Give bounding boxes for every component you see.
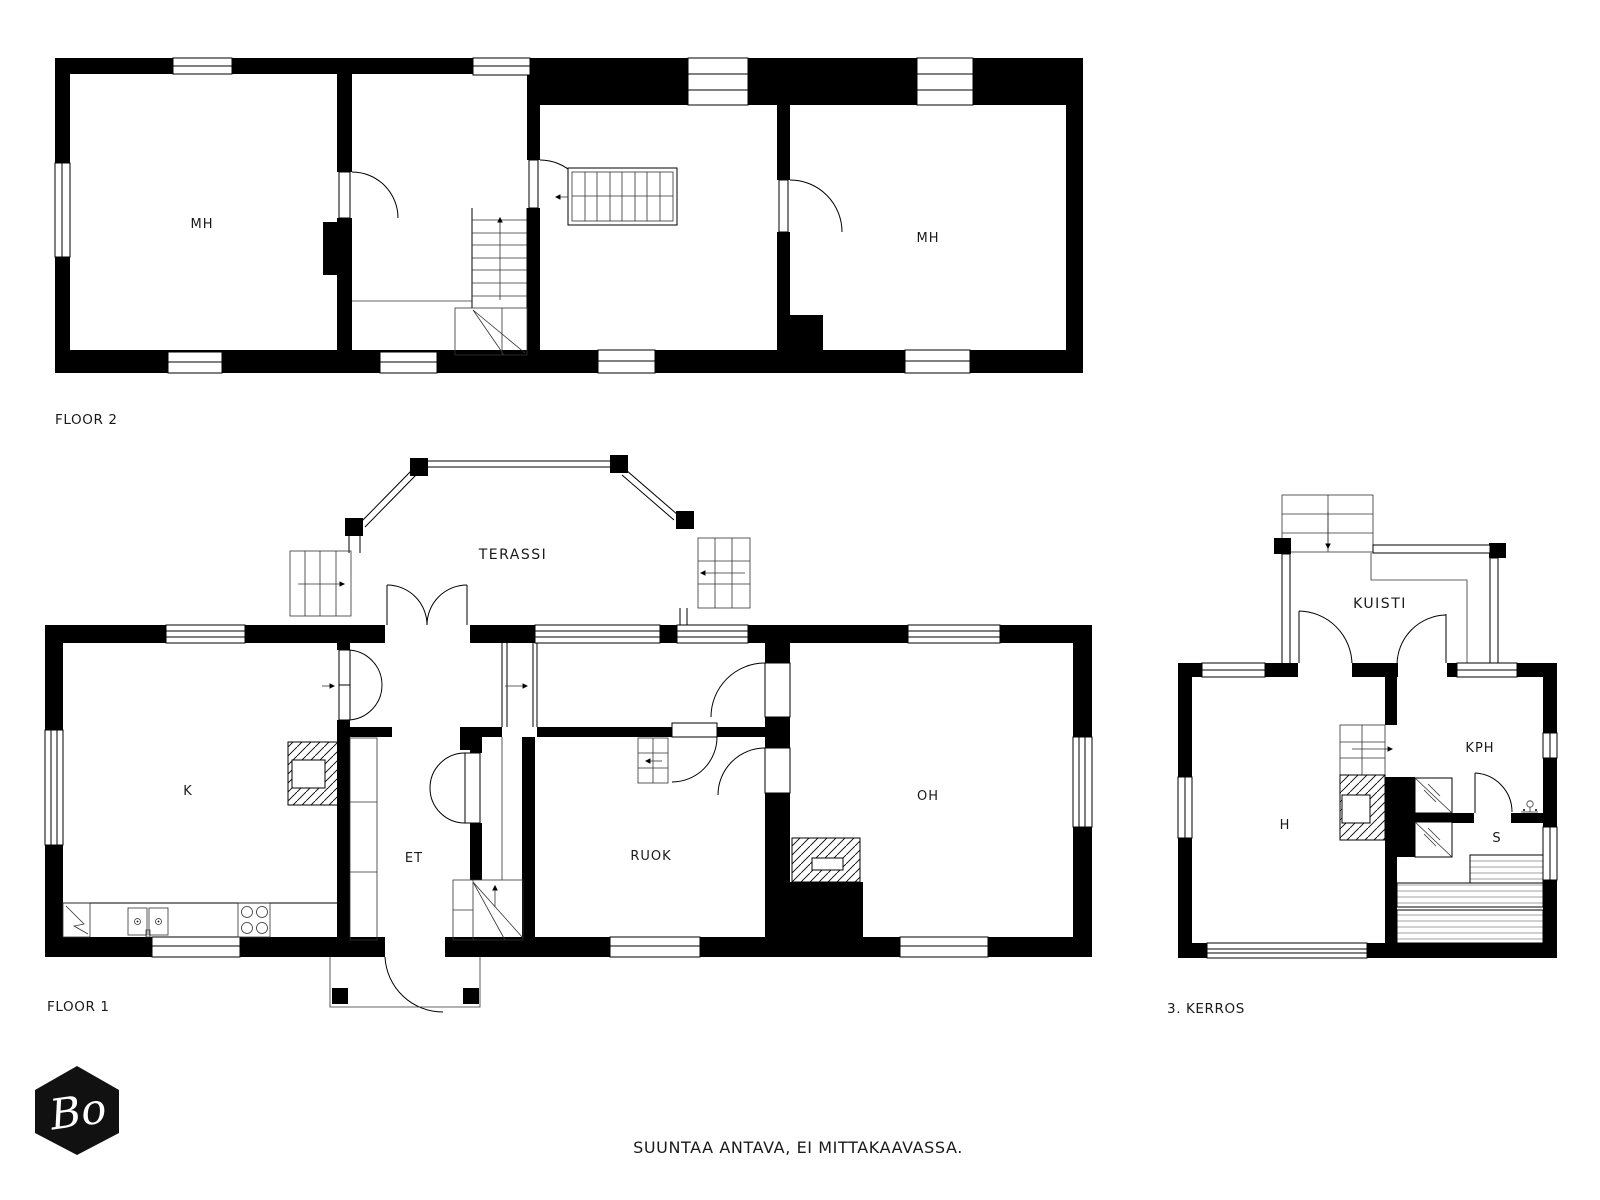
room-label-mh-right: MH [917, 231, 940, 246]
kitchen-hall-double-door [322, 650, 382, 720]
hall-ruok-door [672, 737, 717, 782]
shower-s [1415, 822, 1452, 857]
window [1178, 777, 1192, 838]
sink [128, 908, 168, 937]
terrace-french-doors [387, 585, 467, 625]
window [166, 625, 245, 643]
terrace-steps-left [290, 551, 351, 616]
room-label-s: S [1492, 831, 1501, 846]
window [535, 625, 660, 643]
hall-stairs [1340, 725, 1392, 775]
floor1-openings [337, 625, 790, 957]
entrance-door [330, 957, 480, 1012]
kph-door [1475, 773, 1512, 813]
window [688, 58, 748, 105]
room-label-h: H [1280, 818, 1291, 833]
floor-plan-page: MH MH FLOOR 2 TERASSI [0, 0, 1600, 1200]
window [905, 350, 970, 373]
window [1543, 827, 1557, 880]
window [173, 58, 232, 74]
floor1-plan: TERASSI [45, 455, 1092, 1012]
floor3-plan: KUISTI [1178, 495, 1557, 958]
room-label-kuisti: KUISTI [1353, 596, 1407, 612]
floor2-plan: MH MH [55, 58, 1083, 373]
shower-kph [1415, 778, 1452, 813]
ruok-steps [638, 738, 668, 783]
floor1-caption: FLOOR 1 [47, 999, 110, 1015]
porch: KUISTI [1274, 495, 1506, 665]
ruok-oh-door [718, 748, 765, 795]
toilet-icon [1521, 801, 1538, 812]
window [1207, 943, 1367, 958]
floor-plan-drawing: MH MH FLOOR 2 TERASSI [0, 0, 1600, 1200]
window [152, 937, 240, 957]
door [339, 172, 398, 218]
terrace: TERASSI [290, 455, 750, 625]
porch-double-door [1299, 611, 1446, 665]
window [168, 352, 222, 373]
winder-stairs [453, 880, 523, 940]
room-label-terassi: TERASSI [478, 547, 548, 563]
window [900, 937, 988, 957]
kitchen-counter [63, 903, 337, 937]
et-ruok-double-door [430, 753, 480, 823]
oh-fireplace [792, 838, 860, 882]
terrace-steps-right [698, 538, 750, 608]
window [1457, 663, 1517, 677]
hall-chimney [1340, 775, 1385, 840]
window [45, 730, 63, 845]
kitchen-chimney [288, 742, 340, 805]
floor3-caption: 3. KERROS [1167, 1001, 1245, 1017]
room-label-ruok: RUOK [630, 849, 671, 864]
room-label-et: ET [405, 851, 423, 866]
window [610, 937, 700, 957]
stove [238, 903, 270, 937]
floor2-caption: FLOOR 2 [55, 412, 118, 428]
window [598, 350, 655, 373]
window [473, 58, 530, 75]
room-label-mh-left: MH [191, 217, 214, 232]
disclaimer-text: SUUNTAA ANTAVA, EI MITTAKAAVASSA. [633, 1138, 963, 1157]
door [779, 180, 842, 232]
window [55, 163, 70, 257]
room-label-k: K [183, 784, 193, 799]
room-label-oh: OH [917, 789, 939, 804]
hall-oh-door [711, 663, 765, 717]
floor2-windows [55, 58, 973, 373]
window [1073, 737, 1092, 827]
window [1202, 663, 1265, 677]
floor2-stairwell-opening [556, 168, 677, 225]
window [917, 58, 973, 105]
corner-cabinet [63, 903, 90, 937]
window [380, 352, 437, 373]
et-wardrobe [350, 738, 377, 940]
window [908, 625, 1000, 643]
porch-entry-steps [1282, 495, 1373, 552]
sauna-benches [1397, 855, 1543, 943]
window [677, 625, 748, 643]
window [1543, 733, 1557, 758]
logo-text: Bo [46, 1083, 109, 1139]
brand-logo: Bo [35, 1066, 119, 1155]
room-label-kph: KPH [1465, 741, 1494, 756]
floor2-staircase [352, 208, 527, 355]
